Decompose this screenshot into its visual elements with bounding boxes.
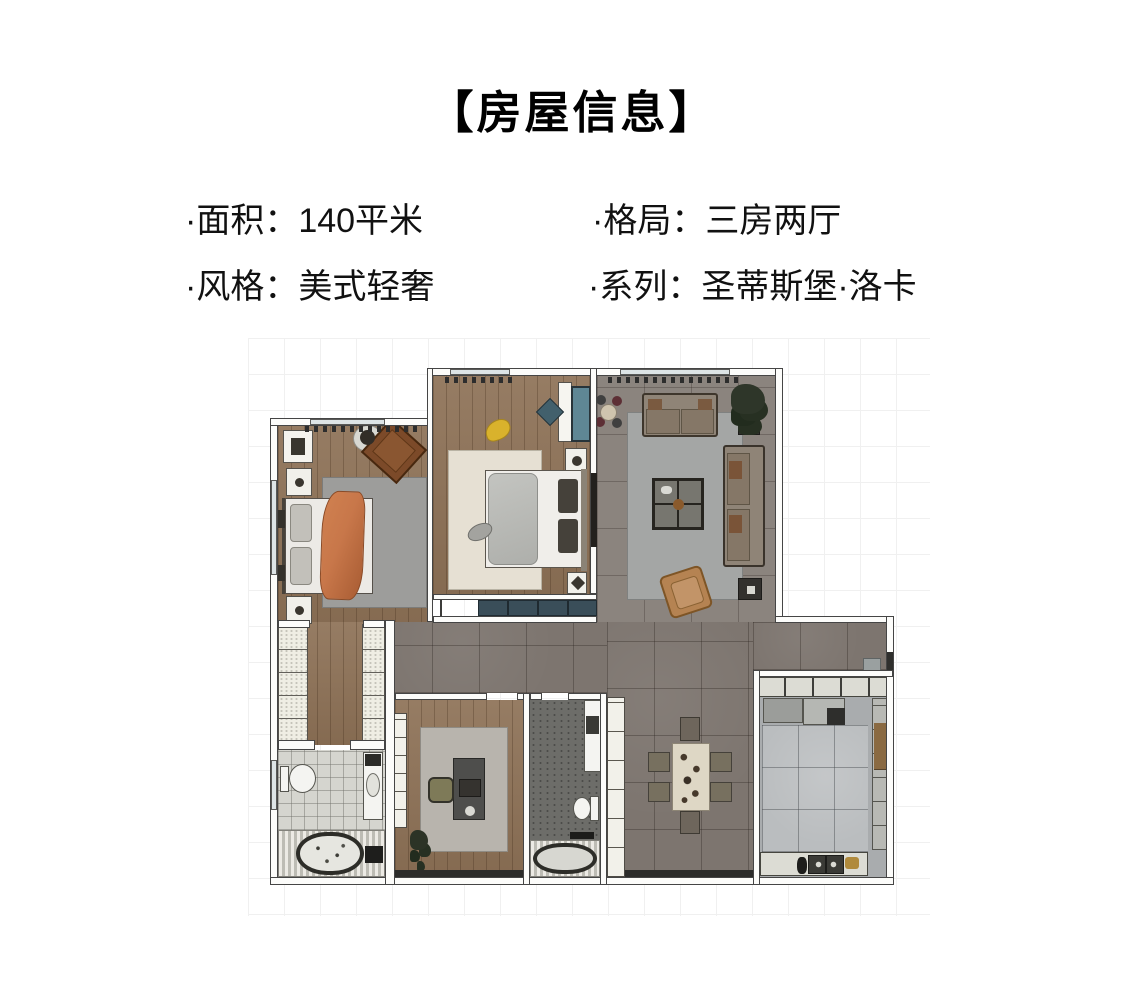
decor	[661, 486, 672, 494]
cooktop	[827, 708, 845, 725]
wardrobe-right	[362, 624, 385, 742]
double-sink	[808, 855, 844, 874]
wall	[385, 620, 395, 885]
sofa-pillow	[698, 399, 712, 410]
curtain	[608, 377, 738, 383]
bathroom1-vanity	[363, 752, 383, 820]
sofa-top	[642, 393, 718, 437]
kitchen-counter-top	[757, 677, 893, 697]
wall-art	[278, 565, 285, 581]
dining-chair	[648, 782, 670, 802]
window	[271, 760, 277, 810]
side-table-bottom	[738, 578, 762, 600]
decor	[746, 419, 754, 427]
master-window-band	[478, 600, 597, 616]
kitchen-appliance	[763, 698, 803, 723]
wall	[278, 620, 310, 628]
master-glass-cabinet	[571, 386, 591, 442]
toilet-tank	[590, 796, 599, 821]
bedroom2-orange-blanket	[319, 490, 366, 600]
info-style: ·风格：美式轻奢	[185, 259, 434, 308]
decor	[465, 806, 475, 816]
sofa-pillow	[648, 399, 662, 410]
bedroom2-cabinet	[283, 430, 313, 463]
curtain	[305, 426, 420, 432]
sink	[366, 773, 380, 797]
wardrobe-left	[278, 624, 308, 742]
kitchen-sink-counter	[760, 852, 868, 876]
desk-chair	[428, 777, 454, 803]
wall-art	[278, 510, 285, 528]
wall	[433, 616, 597, 623]
dining-chair	[710, 752, 732, 772]
wall	[350, 740, 385, 750]
armchair-cushion	[670, 575, 705, 610]
info-area: ·面积：140平米	[185, 193, 423, 242]
dining-chair	[680, 717, 700, 741]
dining-chair	[680, 811, 700, 834]
wall	[427, 368, 433, 622]
hall-cabinet	[607, 697, 625, 877]
sink	[586, 716, 599, 734]
coffee-table	[652, 478, 704, 530]
lamp	[295, 606, 304, 615]
wall-tv	[591, 473, 597, 547]
decor	[747, 586, 755, 594]
tea-chair	[596, 395, 606, 405]
kitchen-marble-tiles	[762, 725, 868, 852]
wall	[775, 616, 893, 623]
wall	[278, 740, 315, 750]
seat-cushion	[681, 409, 714, 434]
wall	[395, 693, 487, 700]
pillow	[558, 519, 578, 553]
page: { "header": { "title": "【房屋信息】" }, "deta…	[0, 0, 1145, 1000]
laptop	[459, 779, 481, 797]
curtain	[445, 377, 515, 383]
bedroom2-nightstand-top	[286, 468, 312, 496]
pillow	[290, 504, 312, 542]
grey-duvet	[488, 473, 538, 565]
window	[620, 369, 730, 375]
seat-cushion	[646, 409, 680, 434]
master-headboard	[581, 469, 587, 571]
appliance	[365, 754, 381, 766]
page-title: 【房屋信息】	[0, 76, 1145, 141]
sofa-right	[723, 445, 765, 567]
study-window-band	[395, 870, 523, 877]
window	[450, 369, 510, 375]
wall	[530, 693, 542, 700]
pillow	[290, 547, 312, 585]
study-desk	[453, 758, 485, 820]
toilet-tank	[280, 766, 289, 792]
entry-door	[887, 652, 893, 670]
decor	[571, 576, 585, 590]
window	[271, 480, 277, 575]
decor	[673, 499, 684, 510]
pillow	[558, 479, 578, 513]
plant	[410, 830, 428, 850]
window	[310, 419, 385, 425]
tea-chair	[612, 396, 622, 406]
bathtub	[296, 832, 364, 875]
wall	[775, 368, 783, 623]
bath-mat	[570, 832, 594, 839]
lamp	[295, 478, 304, 487]
bedroom2-side-table	[360, 430, 375, 445]
decor	[572, 456, 582, 466]
wall	[753, 670, 893, 677]
info-series: ·系列：圣蒂斯堡·洛卡	[588, 259, 917, 308]
tea-table	[600, 404, 617, 421]
bathtub	[533, 843, 597, 874]
door-leaf	[440, 600, 442, 616]
dining-chair	[648, 752, 670, 772]
wall	[600, 693, 607, 885]
dining-chair	[710, 782, 732, 802]
plant	[731, 384, 765, 414]
sofa-pillow	[729, 461, 742, 479]
wall	[363, 620, 385, 628]
bath-mat	[365, 846, 383, 863]
cabinet-decor	[291, 438, 305, 455]
wall	[753, 670, 760, 885]
floor-plan	[270, 360, 902, 892]
master-bed	[485, 470, 585, 568]
master-nightstand-bottom	[567, 572, 587, 594]
sofa-pillow	[729, 515, 742, 533]
toilet-bowl	[573, 797, 591, 820]
gold-faucet	[845, 857, 859, 869]
tea-chair	[612, 418, 622, 428]
bathroom2-vanity	[584, 700, 601, 772]
armchair-cushion	[372, 429, 416, 473]
wall	[523, 693, 530, 885]
wall	[270, 877, 894, 885]
hallway-floor	[385, 622, 607, 693]
decor	[797, 857, 807, 874]
dining-table	[672, 743, 710, 811]
dining-window-band	[625, 870, 753, 877]
info-layout: ·格局：三房两厅	[592, 193, 841, 242]
toilet-bowl	[289, 764, 316, 793]
